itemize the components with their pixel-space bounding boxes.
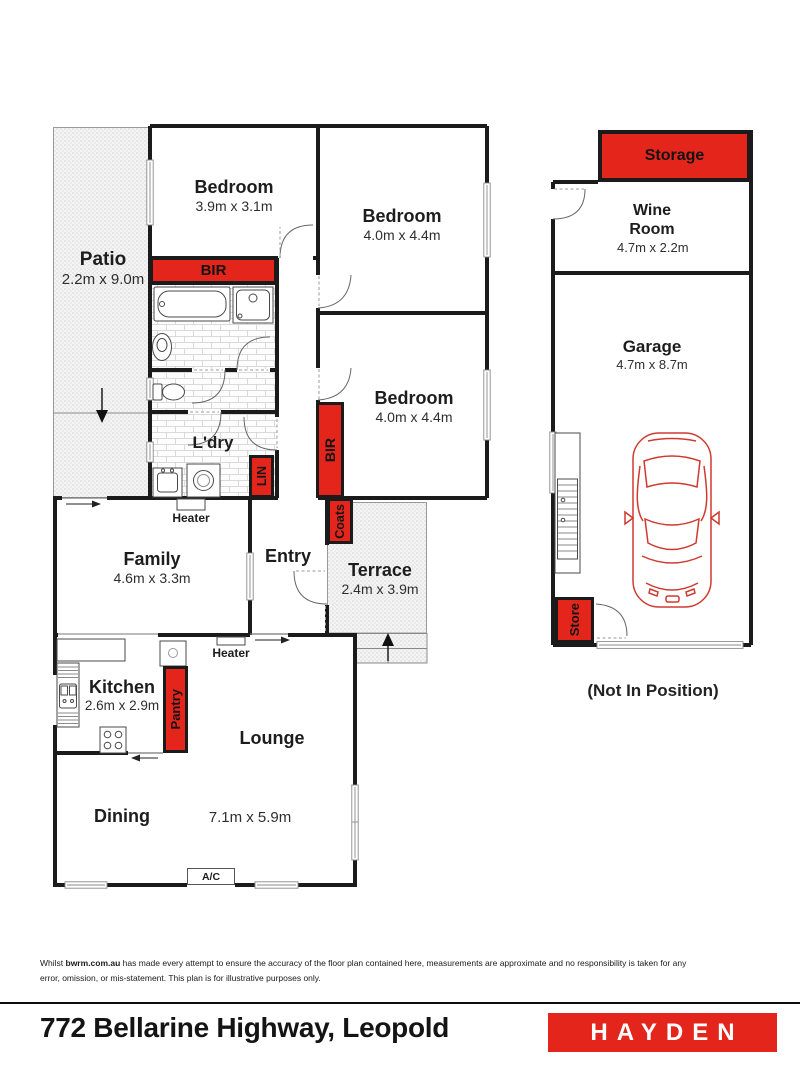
car-icon	[625, 433, 719, 607]
terrace-label: Terrace 2.4m x 3.9m	[341, 560, 418, 598]
bir-closet-bedroom3: BIR	[316, 402, 344, 498]
bedroom2-label: Bedroom 4.0m x 4.4m	[362, 206, 441, 244]
shower-icon	[233, 287, 273, 323]
footer-divider	[0, 1002, 800, 1004]
disclaimer-source: bwrm.com.au	[66, 958, 121, 968]
bir-label: BIR	[201, 262, 227, 279]
washing-machine-icon	[187, 464, 220, 497]
kitchen-label: Kitchen 2.6m x 2.9m	[85, 677, 159, 714]
garage-workbench-icon	[555, 433, 580, 573]
storage-label: Storage	[645, 147, 705, 165]
coats-closet: Coats	[327, 498, 353, 544]
pantry-closet: Pantry	[163, 666, 188, 753]
patio-label: Patio 2.2m x 9.0m	[62, 249, 145, 289]
toilet-icon	[153, 384, 185, 400]
bath-icon	[154, 287, 230, 321]
heater-label-2: Heater	[212, 646, 249, 660]
garage-label: Garage 4.7m x 8.7m	[616, 337, 688, 372]
coats-label: Coats	[333, 504, 347, 539]
pantry-cabinet	[160, 641, 186, 666]
disclaimer-text: Whilst bwrm.com.au has made every attemp…	[40, 956, 700, 987]
laundry-trough-icon	[153, 468, 182, 497]
lounge-dining-dims: 7.1m x 5.9m	[209, 809, 292, 827]
heater-label-1: Heater	[172, 511, 209, 525]
ac-label: A/C	[202, 871, 220, 883]
heater-unit-2	[217, 637, 245, 645]
patio-area	[53, 128, 150, 498]
wine-room-label: Wine Room 4.7m x 2.2m	[617, 202, 687, 255]
property-address: 772 Bellarine Highway, Leopold	[40, 1012, 449, 1044]
hayden-logo: HAYDEN	[548, 1013, 777, 1052]
lounge-label: Lounge	[240, 728, 305, 749]
bedroom1-label: Bedroom 3.9m x 3.1m	[194, 177, 273, 215]
ac-unit: A/C	[187, 868, 235, 885]
bir-label: BIR	[322, 438, 338, 462]
stove-icon	[100, 727, 126, 753]
laundry-label: L'dry	[193, 433, 234, 453]
kitchen-bench	[57, 639, 125, 661]
store-closet: Store	[555, 597, 594, 643]
storage-room: Storage	[598, 130, 751, 182]
floor-plan-page: BIR BIR LIN Coats Pantry Storage Store P…	[0, 0, 800, 1066]
linen-closet: LIN	[249, 455, 274, 498]
bedroom3-label: Bedroom 4.0m x 4.4m	[374, 388, 453, 426]
disclaimer-prefix: Whilst	[40, 958, 66, 968]
not-in-position-note: (Not In Position)	[587, 681, 718, 701]
kitchen-sink-icon	[57, 663, 79, 727]
heater-unit-1	[177, 499, 205, 510]
hayden-logo-text: HAYDEN	[590, 1019, 743, 1047]
disclaimer-rest: has made every attempt to ensure the acc…	[40, 958, 686, 983]
dining-label: Dining	[94, 806, 150, 827]
pantry-label: Pantry	[168, 689, 183, 729]
bir-closet-bedroom1: BIR	[150, 257, 277, 284]
family-label: Family 4.6m x 3.3m	[113, 549, 190, 587]
store-label: Store	[567, 603, 582, 636]
lin-label: LIN	[255, 466, 269, 486]
vanity-basin-icon	[153, 334, 172, 361]
entry-label: Entry	[265, 546, 311, 567]
